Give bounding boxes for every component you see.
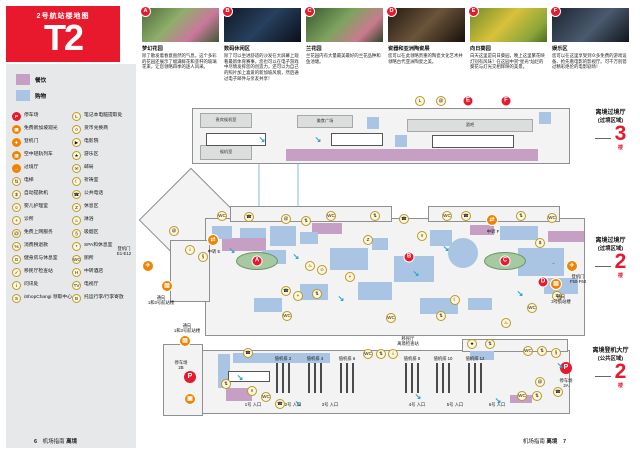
footer-section-right: 离境 — [546, 439, 557, 445]
shower-icon: ♨ — [501, 318, 511, 328]
checkin-row-label: 值机排 6 — [328, 356, 366, 361]
room-box — [432, 135, 514, 148]
shop-block — [240, 228, 266, 238]
skytrain-dest-label: 通向 1和3号航站楼 — [160, 323, 214, 333]
lounge-box: 贵宾候机室 — [200, 113, 252, 128]
dining-block — [548, 231, 584, 242]
gate-range-label: 登机门 E1-E12 — [104, 246, 144, 256]
atm-icon: $ — [535, 238, 545, 248]
rest-area-icon: Z — [363, 235, 373, 245]
lift-icon: ⇅ — [516, 211, 526, 221]
toilet-icon: WC — [547, 213, 557, 223]
checkin-row — [308, 363, 322, 393]
entrance-label: 1号 入口 — [238, 402, 268, 407]
toilet-icon: WC — [517, 391, 527, 401]
entrance-label: 3号 入口 — [315, 402, 345, 407]
direction-arrow: → — [546, 260, 560, 265]
checkin-row — [276, 363, 290, 393]
shop-block — [539, 112, 551, 124]
internet-icon: @ — [169, 226, 179, 236]
skytrain-icon: ▤ — [179, 335, 191, 347]
toilet-icon: WC — [217, 211, 227, 221]
terminal-map: 贵宾候机室候机室美食广场酒吧L@EF↘↘ ✈▤⇄⇄▤✈ABCDWC☎@⇅WC⇅☎… — [0, 0, 640, 454]
shop-block — [372, 238, 388, 250]
shop-block — [448, 238, 478, 268]
lounge-box: 候机室 — [200, 145, 252, 160]
dining-block — [286, 149, 538, 161]
lift-icon: ⇅ — [312, 289, 322, 299]
escalator-icon: ↘ — [555, 361, 565, 371]
clinic-icon: + — [345, 272, 355, 282]
marker-f: F — [501, 96, 512, 107]
toilet-icon: WC — [523, 346, 533, 356]
transfer-f-label: 中转 F — [479, 229, 507, 234]
clinic-icon: + — [293, 291, 303, 301]
shop-block — [358, 282, 392, 300]
toilet-icon: WC — [527, 303, 537, 313]
money-changer-icon: ¤ — [417, 231, 427, 241]
escalator-icon: ↘ — [227, 246, 237, 256]
shop-block — [254, 298, 282, 312]
footer-left: 6 机场指南 离境 — [30, 437, 77, 445]
toilet-icon: WC — [326, 211, 336, 221]
bar-box: 酒吧 — [407, 119, 533, 132]
phone-icon: ☎ — [553, 387, 563, 397]
internet-icon: @ — [281, 214, 291, 224]
escalator-icon: ↘ — [313, 135, 323, 145]
immigration-label: 移民厅 离境检查站 — [380, 336, 436, 346]
lift-icon: ⇅ — [537, 346, 547, 356]
shop-block — [367, 117, 379, 129]
footer-right: 机场指南 离境 7 — [500, 437, 570, 445]
prayer-room-icon: ☾ — [450, 295, 460, 305]
internet-icon: @ — [535, 377, 545, 387]
carpark-2a-label: 停车场 2A — [552, 378, 580, 388]
checkin-row — [405, 363, 419, 393]
room-box — [331, 133, 383, 146]
checkin-row — [436, 363, 450, 393]
gate-icon: ✈ — [566, 260, 578, 272]
shuttle-icon: ▣ — [184, 393, 196, 405]
skytrain-dest-label: 通向 1和3号航站楼 — [132, 295, 190, 305]
phone-icon: ☎ — [244, 212, 254, 222]
transfer-e-icon: ⇄ — [207, 234, 219, 246]
escalator-icon: ↘ — [336, 294, 346, 304]
marker-d: D — [538, 277, 549, 288]
marker-e: E — [463, 96, 474, 107]
footer-section-left: 离境 — [66, 439, 77, 445]
internet-icon: @ — [436, 96, 446, 106]
gate-icon: ✈ — [142, 260, 154, 272]
baby-care-icon: ☺ — [317, 265, 327, 275]
footer-guide-right: 机场指南 — [523, 439, 545, 445]
public-outline — [163, 344, 203, 416]
phone-icon: ☎ — [461, 211, 471, 221]
lift-icon: ⇅ — [436, 311, 446, 321]
escalator-icon: ↘ — [411, 269, 421, 279]
money-changer-icon: ¤ — [247, 386, 257, 396]
escalator-icon: ↘ — [257, 135, 267, 145]
marker-c: C — [500, 256, 511, 267]
parking-icon: P — [184, 371, 196, 383]
page-number-left: 6 — [34, 439, 37, 445]
shop-block — [468, 298, 492, 310]
shop-block — [270, 226, 296, 246]
level2-outline — [230, 206, 392, 222]
foodcourt-box: 美食广场 — [297, 115, 353, 128]
toilet-icon: WC — [282, 311, 292, 321]
transfer-e-label: 中转 E — [200, 249, 228, 254]
entrance-label: 2号 入口 — [278, 402, 308, 407]
toilet-icon: WC — [261, 392, 271, 402]
lift-icon: ⇅ — [376, 349, 386, 359]
phone-icon: ☎ — [243, 348, 253, 358]
information-icon: i — [185, 245, 195, 255]
escalator-icon: ↘ — [235, 373, 245, 383]
lift-icon: ⇅ — [301, 216, 311, 226]
checkin-row — [468, 363, 482, 393]
footer-guide-left: 机场指南 — [43, 439, 65, 445]
phone-icon: ☎ — [281, 286, 291, 296]
lift-icon: ⇅ — [221, 379, 231, 389]
entrance-label: 4号 入口 — [402, 402, 432, 407]
escalator-icon: ↘ — [441, 244, 451, 254]
phone-icon: ☎ — [399, 214, 409, 224]
toilet-icon: WC — [442, 211, 452, 221]
toilet-icon: WC — [386, 313, 396, 323]
shop-block — [300, 232, 318, 244]
checkin-row-label: 值机排 12 — [456, 356, 494, 361]
lift-icon: ⇅ — [485, 339, 495, 349]
carpark-2b-label: 停车场 2B — [168, 360, 194, 370]
shower-icon: ♨ — [305, 261, 315, 271]
smoking-icon: § — [551, 348, 561, 358]
transfer-f-icon: ⇄ — [486, 214, 498, 226]
gate-range-label: 登机门 F50-F60 — [556, 274, 600, 284]
play-area-icon: ★ — [467, 339, 477, 349]
entrance-label: 6号 入口 — [482, 402, 512, 407]
laptop-icon: L — [415, 96, 425, 106]
marker-b: B — [404, 252, 415, 263]
skytrain-dest-label: 通向 3号航站楼 — [536, 294, 586, 304]
lift-icon: ⇅ — [370, 211, 380, 221]
skytrain-icon: ▤ — [161, 280, 173, 292]
escalator-icon: ↘ — [413, 392, 423, 402]
escalator-icon: ↘ — [291, 252, 301, 262]
checkin-row — [340, 363, 354, 393]
lift-icon: ⇅ — [532, 391, 542, 401]
shop-block — [330, 248, 368, 270]
entrance-label: 5号 入口 — [440, 402, 470, 407]
escalator-icon: ↘ — [515, 289, 525, 299]
page-number-right: 7 — [563, 439, 566, 445]
shop-block — [395, 135, 407, 147]
marker-a: A — [252, 256, 263, 267]
